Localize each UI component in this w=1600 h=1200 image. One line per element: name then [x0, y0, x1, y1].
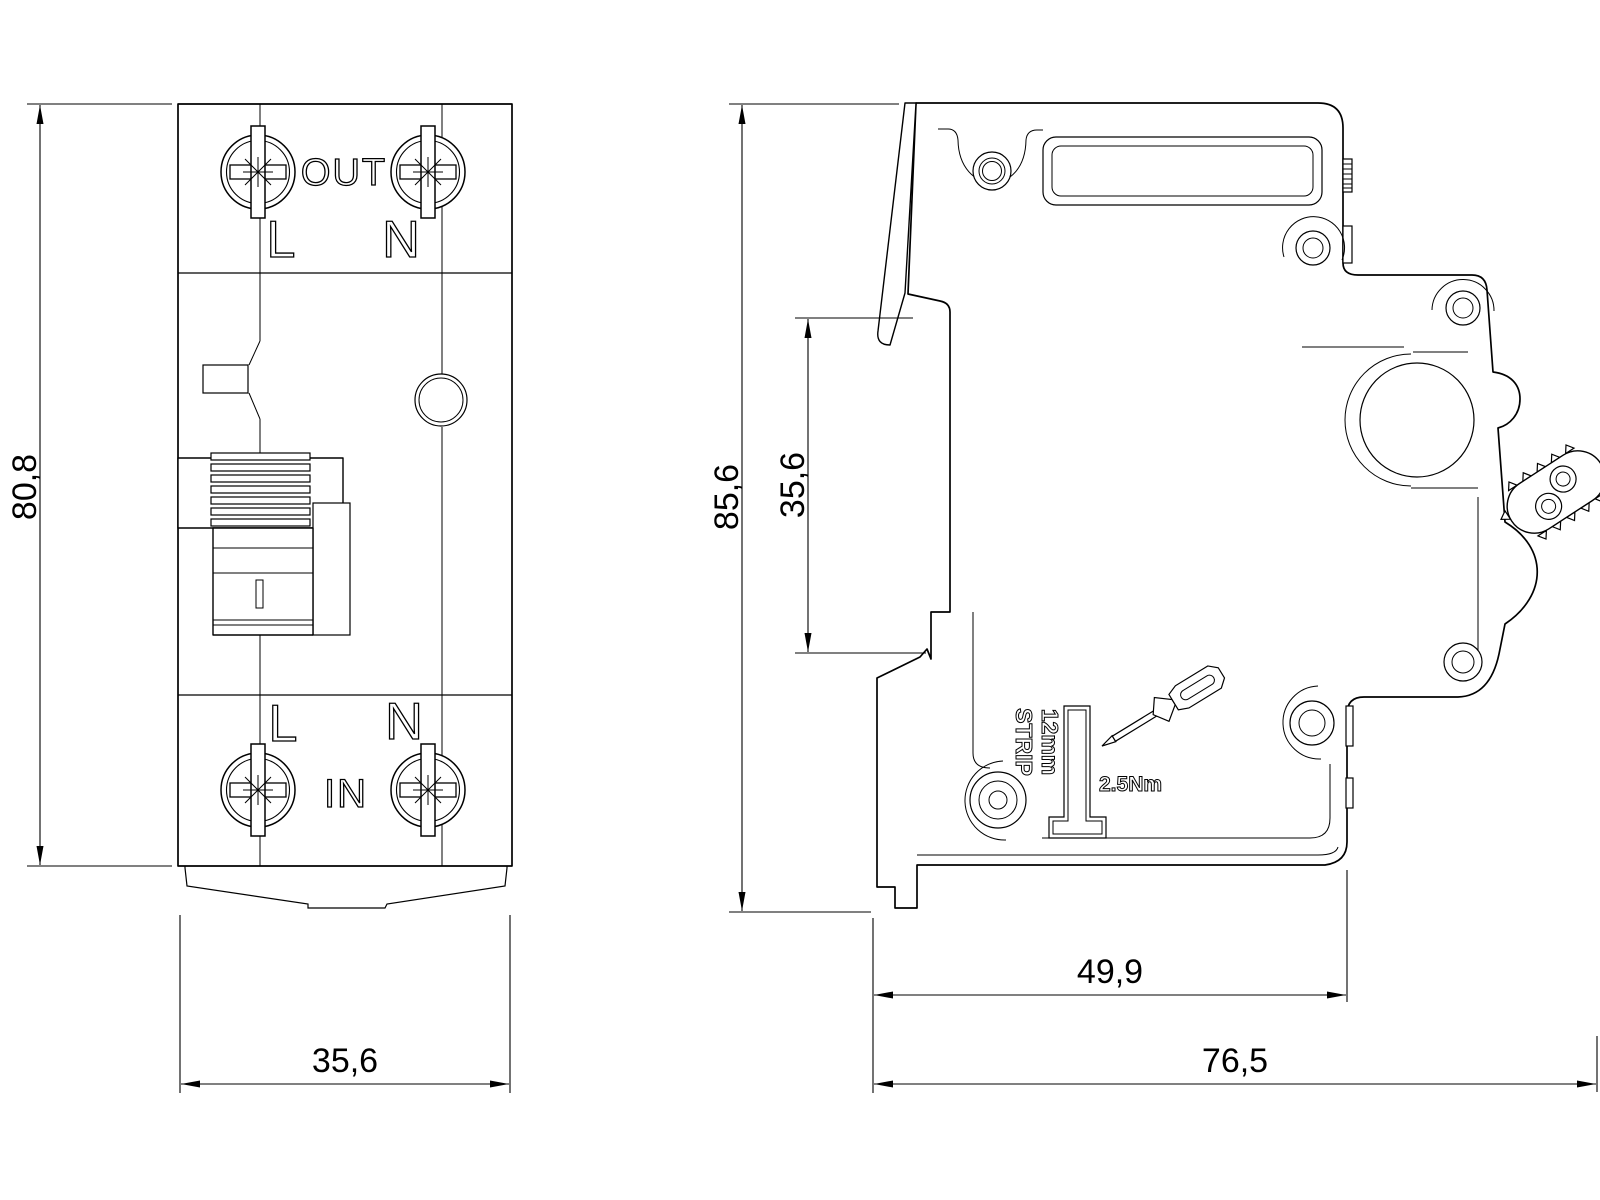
- dimension-front-height: 80,8: [6, 104, 172, 866]
- torque-label: 2.5Nm: [1099, 773, 1162, 796]
- pole-l-bottom-label: L: [269, 695, 298, 753]
- technical-drawing: OUT L N L N IN 80,8 35,6: [0, 0, 1600, 1200]
- side-view: 12mm STRIP 2.5Nm: [877, 103, 1600, 908]
- dimension-terminal-cutout: 35,6: [774, 318, 926, 653]
- pole-n-bottom-label: N: [385, 693, 423, 751]
- dimension-front-width: 35,6: [180, 915, 510, 1093]
- dimension-overall-depth: 76,5: [874, 1036, 1597, 1092]
- dim-35-6-width: 35,6: [312, 1042, 378, 1080]
- pole-n-top-label: N: [382, 211, 420, 269]
- test-button: [203, 365, 248, 393]
- din-clip: [185, 866, 507, 908]
- in-label: IN: [324, 772, 368, 816]
- dim-76-5: 76,5: [1202, 1042, 1268, 1080]
- dim-35-6-cutout: 35,6: [774, 452, 812, 518]
- dimension-body-depth: 49,9: [873, 870, 1347, 1093]
- dim-49-9: 49,9: [1077, 953, 1143, 991]
- pole-l-top-label: L: [267, 211, 296, 269]
- indicator-window: [415, 374, 467, 426]
- out-label: OUT: [301, 152, 387, 194]
- front-view: OUT L N L N IN: [178, 104, 512, 908]
- strip-length-label: 12mm: [1037, 709, 1063, 775]
- dim-80-8: 80,8: [6, 454, 44, 520]
- dim-85-6: 85,6: [708, 464, 746, 530]
- toggle-side-bar: [313, 503, 350, 635]
- strip-label: STRIP: [1011, 708, 1037, 776]
